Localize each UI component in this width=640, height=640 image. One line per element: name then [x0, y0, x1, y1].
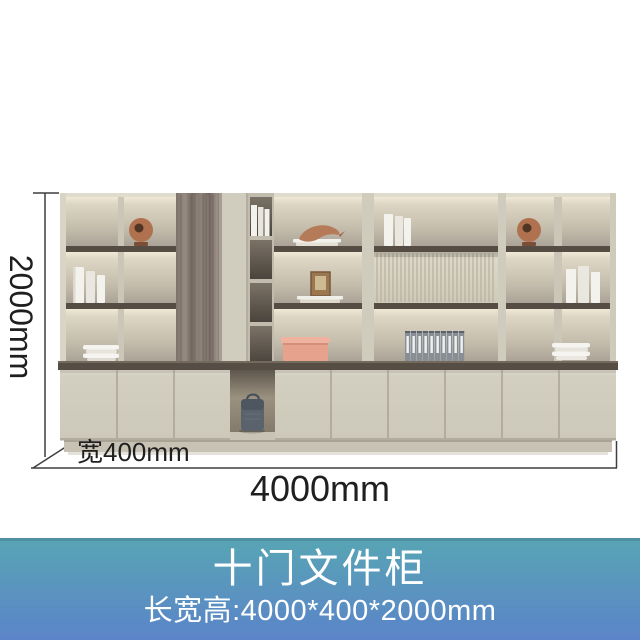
product-size-subtitle: 长宽高:4000*400*2000mm — [0, 596, 640, 628]
cabinet — [58, 193, 618, 455]
open-compartment — [230, 370, 275, 440]
product-banner: 十门文件柜 长宽高:4000*400*2000mm — [0, 538, 640, 640]
side-panel-shadow — [246, 193, 248, 365]
towels-left — [83, 345, 119, 361]
cabinet-top-rail — [60, 193, 616, 197]
display-books-top — [384, 214, 411, 246]
bag — [239, 395, 265, 434]
storage-box-pink — [281, 337, 330, 361]
cubby-books — [251, 205, 270, 236]
depth-dimension-label: 宽400mm — [77, 439, 190, 465]
height-dimension-label: 2000mm — [5, 255, 37, 380]
width-dimension-label: 4000mm — [250, 471, 390, 507]
fluted-panel — [374, 252, 498, 303]
side-panel — [222, 193, 248, 365]
section-wall — [362, 193, 374, 365]
section-wall — [498, 193, 506, 365]
base-cabinet-doors — [60, 370, 616, 441]
page: { "dimensions": { "height": "2000mm", "d… — [0, 0, 640, 640]
towels-right — [552, 343, 590, 360]
countertop — [58, 361, 618, 370]
product-title: 十门文件柜 — [0, 547, 640, 591]
product-image: 2000mm 宽400mm 4000mm 十门文件柜 长宽高:4000*400*… — [0, 0, 640, 640]
wood-grain-panel — [176, 193, 222, 365]
cabinet-left-stile — [60, 193, 66, 370]
cabinet-right-stile — [610, 193, 616, 370]
